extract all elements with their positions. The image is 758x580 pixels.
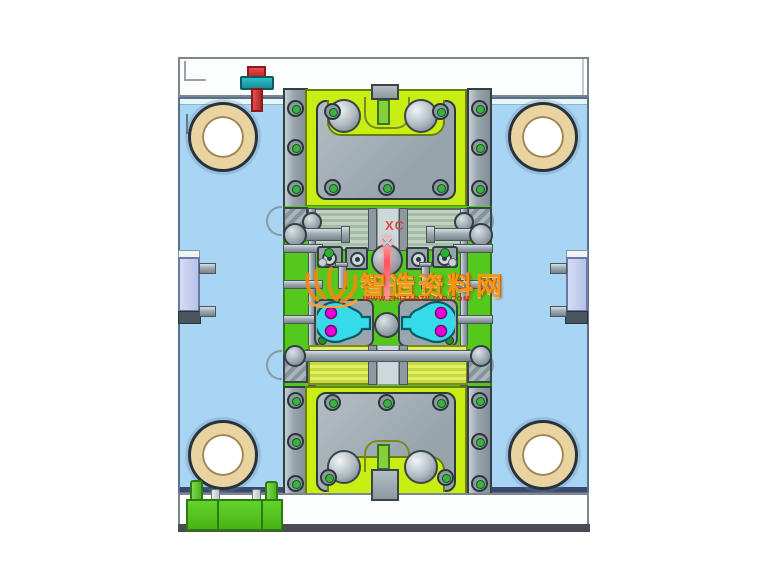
screw-hole xyxy=(471,475,488,492)
support-pin xyxy=(550,306,567,317)
screw-dot xyxy=(324,248,334,258)
screw-hole xyxy=(378,394,395,411)
screw-hole xyxy=(324,103,341,120)
guide-bushing-bottom-right xyxy=(404,450,438,484)
watermark-logo xyxy=(302,266,360,308)
screw-hole xyxy=(378,179,395,196)
cavity-insert-right xyxy=(401,301,455,345)
slide-bar-cap xyxy=(341,226,350,243)
screw-hole xyxy=(287,475,304,492)
plate-edge-line xyxy=(582,59,584,95)
screw-hole xyxy=(432,179,449,196)
insert-dot xyxy=(436,308,447,319)
support-block-right-base xyxy=(565,311,588,324)
guide-stub xyxy=(453,315,493,324)
support-pin xyxy=(199,263,216,274)
red-bolt-assembly xyxy=(240,66,274,112)
bar-knob xyxy=(470,345,492,367)
sprue-slot-bottom xyxy=(377,444,390,470)
screw-hole xyxy=(471,180,488,197)
block-seam xyxy=(217,500,219,530)
insert-dot xyxy=(436,326,447,337)
screw-hole xyxy=(437,469,454,486)
bolt-shaft xyxy=(251,88,263,112)
bar-knob xyxy=(284,345,306,367)
support-block-left-base xyxy=(178,311,201,324)
screw-hole xyxy=(471,392,488,409)
support-block-left xyxy=(178,257,200,312)
screw-dot xyxy=(440,248,450,258)
screw-hole xyxy=(471,139,488,156)
screw-hole xyxy=(287,100,304,117)
datum-cross-mark: ✕ xyxy=(381,233,394,251)
locating-ring-top-right xyxy=(511,105,575,169)
support-pin xyxy=(550,263,567,274)
screw-hole xyxy=(432,394,449,411)
watermark-subtitle: WWW.ZHIZAOZILIAO.COM xyxy=(363,294,470,303)
screw-hole xyxy=(287,139,304,156)
screw-hole xyxy=(287,433,304,450)
locating-ring-bottom-right xyxy=(511,423,575,487)
support-block-right xyxy=(566,257,588,312)
cad-viewport[interactable]: XC ✕ xyxy=(0,0,758,580)
slide-bar-cap xyxy=(426,226,435,243)
corner-notch-mark xyxy=(184,61,206,81)
sprue-tab-bottom xyxy=(371,469,399,501)
screw-hole xyxy=(287,392,304,409)
screw-hole xyxy=(471,100,488,117)
block-seam xyxy=(261,500,263,530)
sprue-puller xyxy=(374,312,400,338)
screw-hole xyxy=(432,103,449,120)
runner-channel-wall xyxy=(368,208,377,251)
insert-dot xyxy=(326,326,337,337)
sprue-slot-top xyxy=(377,99,390,125)
sprue-tab-top xyxy=(371,84,399,100)
screw-hole xyxy=(287,180,304,197)
screw-hole xyxy=(324,179,341,196)
cross-bar xyxy=(295,350,481,362)
support-pin xyxy=(199,306,216,317)
screw-hole xyxy=(324,394,341,411)
screw-hole xyxy=(320,469,337,486)
insert-dot xyxy=(326,308,337,319)
guide-stub xyxy=(453,244,493,253)
locating-ring-top-left xyxy=(191,105,255,169)
locating-ring-bottom-left xyxy=(191,423,255,487)
screw-hole xyxy=(471,433,488,450)
ejector-guide-block xyxy=(186,499,283,531)
datum-label: XC xyxy=(385,218,405,233)
